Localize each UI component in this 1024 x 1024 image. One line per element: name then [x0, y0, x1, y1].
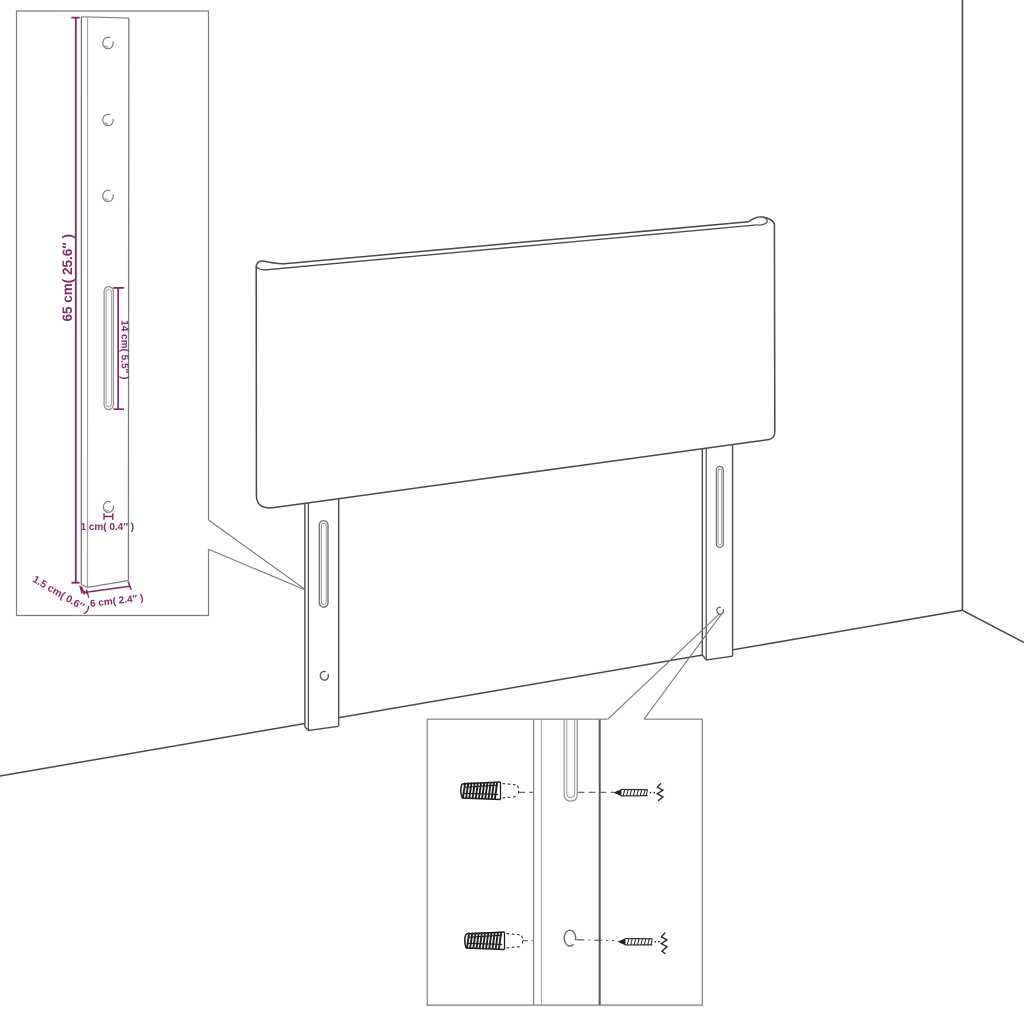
- svg-text:1 cm( 0.4″ ): 1 cm( 0.4″ ): [80, 522, 134, 533]
- svg-text:65 cm( 25.6″ ): 65 cm( 25.6″ ): [60, 234, 75, 322]
- svg-text:14 cm( 5.5″ ): 14 cm( 5.5″ ): [119, 320, 130, 379]
